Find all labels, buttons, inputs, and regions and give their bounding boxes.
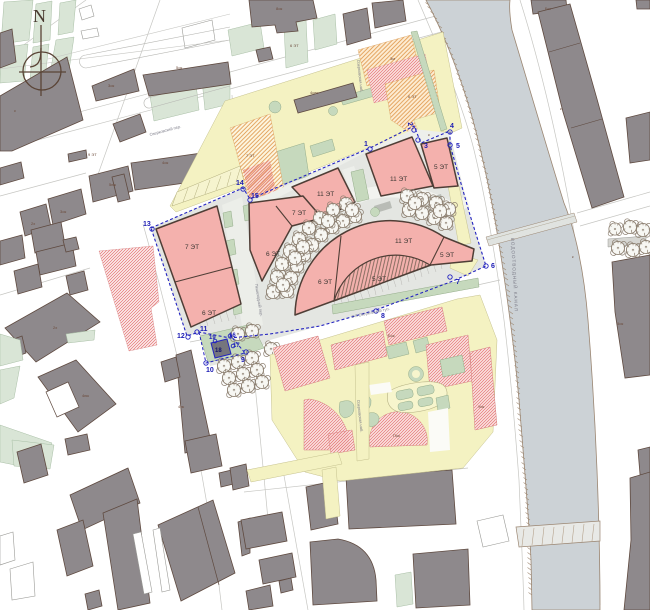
svg-text:4юк: 4юк <box>82 393 89 398</box>
svg-text:15: 15 <box>251 193 259 200</box>
svg-text:16: 16 <box>229 333 236 339</box>
svg-text:11 ЭТ: 11 ЭТ <box>395 238 412 245</box>
svg-text:13: 13 <box>143 221 151 228</box>
svg-text:5юк: 5юк <box>109 182 116 187</box>
svg-text:11 ЭТ: 11 ЭТ <box>390 176 407 183</box>
svg-text:7 ЭТ: 7 ЭТ <box>185 244 199 251</box>
svg-text:Уок: Уок <box>478 404 484 409</box>
svg-text:7: 7 <box>456 279 460 286</box>
svg-text:2х: 2х <box>53 325 57 330</box>
svg-text:10: 10 <box>206 367 214 374</box>
svg-text:11: 11 <box>200 326 208 333</box>
svg-text:8: 8 <box>381 313 385 320</box>
svg-text:6 ЭТ: 6 ЭТ <box>202 310 216 317</box>
svg-text:4: 4 <box>450 123 454 130</box>
svg-text:4ок: 4ок <box>162 160 168 165</box>
svg-text:8ок: 8ок <box>276 6 282 11</box>
svg-text:6: 6 <box>491 263 495 270</box>
svg-text:7 ЭТ: 7 ЭТ <box>292 210 306 217</box>
svg-text:Пок: Пок <box>393 433 400 438</box>
svg-text:2х: 2х <box>31 221 35 226</box>
svg-text:4нк: 4нк <box>178 404 184 409</box>
svg-text:N: N <box>33 6 46 26</box>
svg-text:9: 9 <box>241 357 245 364</box>
svg-text:6 ЭТ: 6 ЭТ <box>266 251 280 258</box>
svg-text:3м: 3м <box>390 56 395 61</box>
svg-text:5 ЭТ: 5 ЭТ <box>372 276 386 283</box>
svg-text:12: 12 <box>177 333 185 340</box>
svg-text:19: 19 <box>209 335 216 341</box>
svg-text:3: 3 <box>424 143 428 150</box>
svg-text:4сек: 4сек <box>310 90 318 95</box>
svg-text:6 ЭТ: 6 ЭТ <box>408 94 417 99</box>
svg-text:1: 1 <box>364 141 368 148</box>
svg-text:18: 18 <box>215 348 222 354</box>
svg-text:Бок: Бок <box>545 7 551 11</box>
svg-text:к: к <box>428 132 430 137</box>
svg-text:Бок: Бок <box>388 333 395 338</box>
svg-text:17: 17 <box>233 343 240 349</box>
svg-text:5 ЭТ: 5 ЭТ <box>440 252 454 259</box>
svg-text:14: 14 <box>236 180 244 187</box>
svg-text:6 ЭТ: 6 ЭТ <box>318 279 332 286</box>
svg-text:11 ЭТ: 11 ЭТ <box>317 191 334 198</box>
svg-text:5: 5 <box>456 143 460 150</box>
svg-text:6 ЭТ: 6 ЭТ <box>290 43 299 48</box>
svg-text:3ок: 3ок <box>60 209 66 214</box>
svg-text:с: с <box>14 108 16 113</box>
svg-text:7 ЭТ: 7 ЭТ <box>246 153 255 158</box>
svg-text:5ок: 5ок <box>176 65 182 70</box>
svg-text:5 ЭТ: 5 ЭТ <box>434 164 448 171</box>
svg-text:9 ЭТ: 9 ЭТ <box>88 152 97 157</box>
svg-text:5ок: 5ок <box>617 321 623 326</box>
svg-text:3ок: 3ок <box>108 83 114 88</box>
